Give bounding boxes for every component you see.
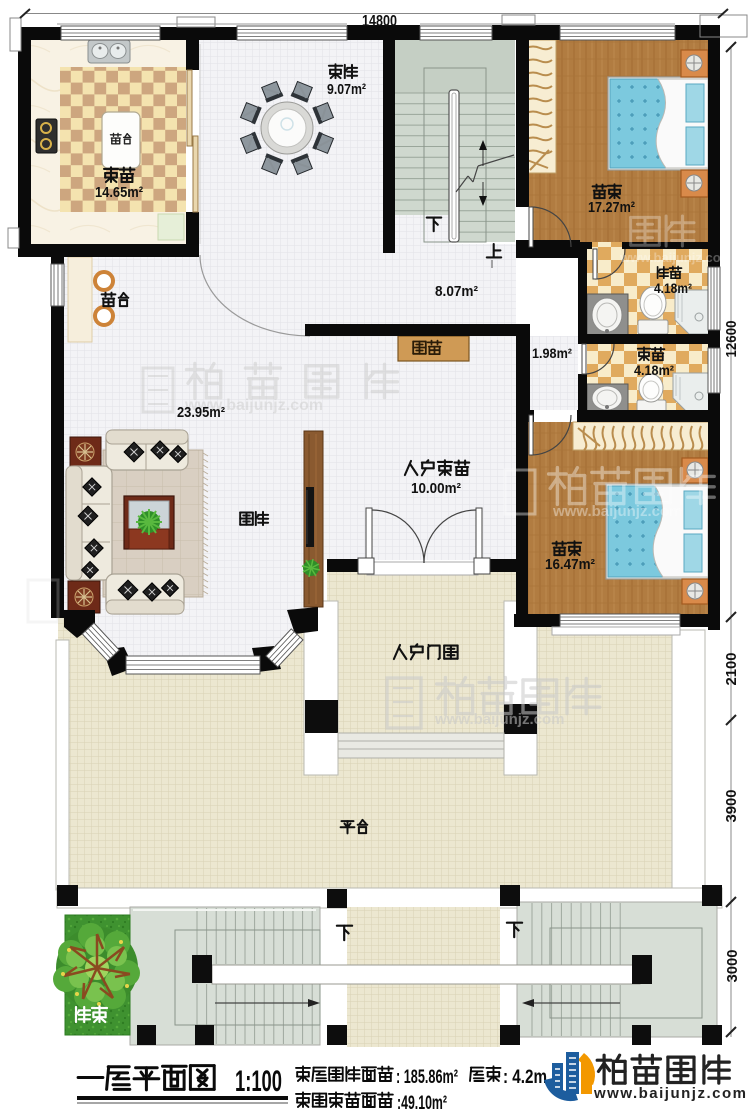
svg-text:10.00m²: 10.00m² bbox=[411, 481, 461, 497]
svg-text:9.07m²: 9.07m² bbox=[327, 81, 366, 98]
svg-text:1.98m²: 1.98m² bbox=[532, 346, 572, 361]
svg-text:17.27m²: 17.27m² bbox=[588, 199, 635, 216]
svg-text:4.18m²: 4.18m² bbox=[634, 362, 674, 378]
svg-text:: 4.2m: : 4.2m bbox=[503, 1067, 547, 1088]
svg-text:www.baijunjz.com: www.baijunjz.com bbox=[552, 503, 682, 520]
svg-text:3000: 3000 bbox=[724, 950, 741, 983]
svg-text:www.baijunjz.com: www.baijunjz.com bbox=[434, 711, 564, 728]
svg-text:12600: 12600 bbox=[723, 321, 740, 358]
svg-text:8.07m²: 8.07m² bbox=[435, 284, 478, 300]
svg-text:14800: 14800 bbox=[362, 13, 397, 30]
svg-text:: 185.86m²: : 185.86m² bbox=[396, 1067, 458, 1088]
svg-text:14.65m²: 14.65m² bbox=[95, 184, 143, 201]
svg-text:www.baijunjz.com: www.baijunjz.com bbox=[593, 1085, 747, 1102]
svg-text:4.18m²: 4.18m² bbox=[654, 281, 692, 296]
svg-text:www.baijunjz.com: www.baijunjz.com bbox=[619, 250, 732, 265]
svg-text:23.95m²: 23.95m² bbox=[177, 405, 225, 421]
svg-text:1:100: 1:100 bbox=[235, 1065, 282, 1098]
svg-text:3900: 3900 bbox=[723, 790, 740, 823]
svg-text::49.10m²: :49.10m² bbox=[397, 1093, 447, 1114]
svg-text:16.47m²: 16.47m² bbox=[545, 557, 595, 573]
svg-text:2100: 2100 bbox=[723, 653, 740, 686]
